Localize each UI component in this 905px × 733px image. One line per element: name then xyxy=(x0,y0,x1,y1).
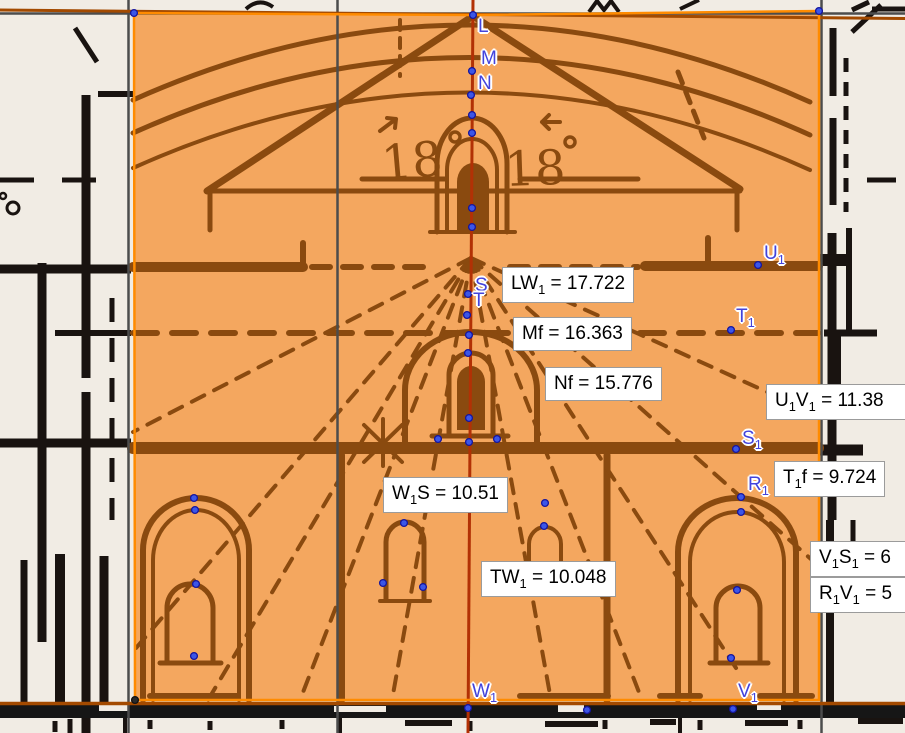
anchor-point-2[interactable] xyxy=(469,112,476,119)
measurement-label-Mf[interactable]: Mf = 16.363 xyxy=(513,317,632,351)
anchor-point-21[interactable] xyxy=(738,509,745,516)
measurement-label-U1V1[interactable]: U1V1 = 11.38 xyxy=(766,384,905,420)
measurement-label-W1S[interactable]: W1S = 10.51 xyxy=(383,477,508,513)
anchor-point-8[interactable] xyxy=(466,415,473,422)
point-R1[interactable] xyxy=(738,494,745,501)
point-label-L[interactable]: L xyxy=(478,17,489,36)
point-T[interactable] xyxy=(464,312,471,319)
anchor-point-14[interactable] xyxy=(541,523,548,530)
corner-point-0[interactable] xyxy=(132,697,139,704)
point-L[interactable] xyxy=(470,12,477,19)
anchor-point-19[interactable] xyxy=(193,581,200,588)
point-N[interactable] xyxy=(468,92,475,99)
anchor-point-12[interactable] xyxy=(401,520,408,527)
anchor-point-18[interactable] xyxy=(192,507,199,514)
anchor-point-1[interactable] xyxy=(816,8,823,15)
measurement-label-TW1[interactable]: TW1 = 10.048 xyxy=(481,561,616,597)
point-label-T[interactable]: T xyxy=(473,291,485,310)
anchor-point-7[interactable] xyxy=(465,350,472,357)
construction-canvas: 18 18 xyxy=(0,0,905,733)
anchor-point-16[interactable] xyxy=(420,584,427,591)
point-label-U1[interactable]: U1 xyxy=(764,244,785,267)
point-label-V1[interactable]: V1 xyxy=(738,682,758,705)
point-label-W1[interactable]: W1 xyxy=(472,682,497,705)
anchor-point-13[interactable] xyxy=(542,500,549,507)
point-label-T1[interactable]: T1 xyxy=(736,307,755,330)
anchor-point-9[interactable] xyxy=(466,439,473,446)
scan-numeral-right: 18 xyxy=(503,140,566,198)
measurement-label-V1S1[interactable]: V1S1 = 6 xyxy=(810,541,905,577)
anchor-point-22[interactable] xyxy=(734,587,741,594)
geogebra-graphics-view[interactable]: 18 18 xyxy=(0,0,905,733)
measurement-label-LW1[interactable]: LW1 = 17.722 xyxy=(502,267,634,303)
point-V1[interactable] xyxy=(730,706,737,713)
measurement-label-T1f[interactable]: T1f = 9.724 xyxy=(774,461,885,497)
anchor-point-5[interactable] xyxy=(469,224,476,231)
point-label-M[interactable]: M xyxy=(481,49,497,68)
point-label-S1[interactable]: S1 xyxy=(742,429,762,452)
anchor-point-0[interactable] xyxy=(131,10,138,17)
point-U1[interactable] xyxy=(755,262,762,269)
point-label-R1[interactable]: R1 xyxy=(748,475,769,498)
anchor-point-23[interactable] xyxy=(728,655,735,662)
measurement-label-R1V1[interactable]: R1V1 = 5 xyxy=(810,577,905,613)
anchor-point-6[interactable] xyxy=(466,332,473,339)
anchor-point-24[interactable] xyxy=(584,707,591,714)
scan-ground-band xyxy=(0,705,905,733)
anchor-point-17[interactable] xyxy=(191,495,198,502)
measurement-label-Nf[interactable]: Nf = 15.776 xyxy=(545,367,662,401)
anchor-point-15[interactable] xyxy=(380,580,387,587)
anchor-point-20[interactable] xyxy=(191,653,198,660)
point-S1[interactable] xyxy=(733,446,740,453)
anchor-point-4[interactable] xyxy=(469,205,476,212)
point-label-N[interactable]: N xyxy=(478,74,492,93)
anchor-point-10[interactable] xyxy=(435,436,442,443)
point-M[interactable] xyxy=(469,68,476,75)
point-W1[interactable] xyxy=(465,705,472,712)
point-S[interactable] xyxy=(465,291,472,298)
point-T1[interactable] xyxy=(728,327,735,334)
anchor-point-11[interactable] xyxy=(494,436,501,443)
scan-numeral-left: 18 xyxy=(379,131,445,192)
anchor-point-3[interactable] xyxy=(469,130,476,137)
